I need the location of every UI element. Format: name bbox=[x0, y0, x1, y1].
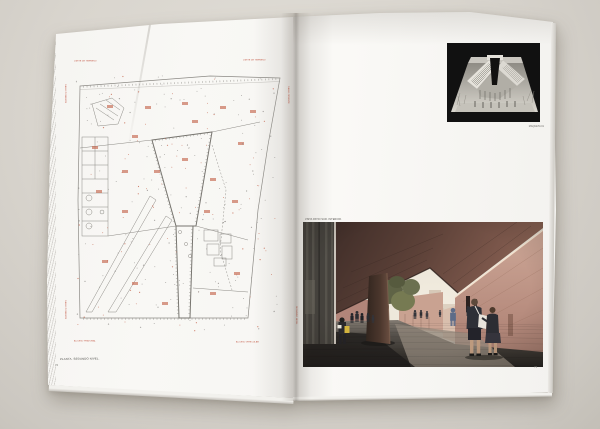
plan-label-bottom-left: ACCESO PEATONAL bbox=[74, 340, 96, 342]
photo-of-magazine-spread: LIMITE DE TERRENO LIMITE DE TERRENO ACCE… bbox=[0, 0, 600, 429]
magazine-spread: LIMITE DE TERRENO LIMITE DE TERRENO ACCE… bbox=[0, 0, 600, 429]
plan-label-right-margin: CALLE ORIENTE bbox=[287, 86, 289, 104]
rendering-photo bbox=[303, 222, 543, 367]
rendering-caption: VISTA PATIO SUR. INTERIOR. bbox=[305, 218, 342, 221]
plan-label-top-right: LIMITE DE TERRENO bbox=[243, 59, 266, 61]
plan-label-left-margin: CALLE PONIENTE bbox=[64, 84, 66, 103]
left-page-sheet-edges bbox=[47, 33, 56, 386]
model-photo-caption: MAQUETA 01 bbox=[529, 125, 540, 128]
plan-label-left-margin-2: CALLE PONIENTE bbox=[64, 300, 66, 319]
right-page-number: 73 bbox=[534, 366, 537, 369]
left-page-number: 72 bbox=[55, 364, 58, 367]
plan-label-top-left: LIMITE DE TERRENO bbox=[74, 60, 97, 62]
model-photo bbox=[447, 43, 540, 122]
right-page-margin-label: SEGUNDO NIVEL bbox=[295, 306, 297, 324]
plan-label-bottom-right: ACCESO VEHICULAR bbox=[236, 341, 259, 343]
floor-plan-drawing bbox=[62, 50, 288, 356]
plan-caption: PLANTA. SEGUNDO NIVEL. bbox=[60, 357, 100, 361]
